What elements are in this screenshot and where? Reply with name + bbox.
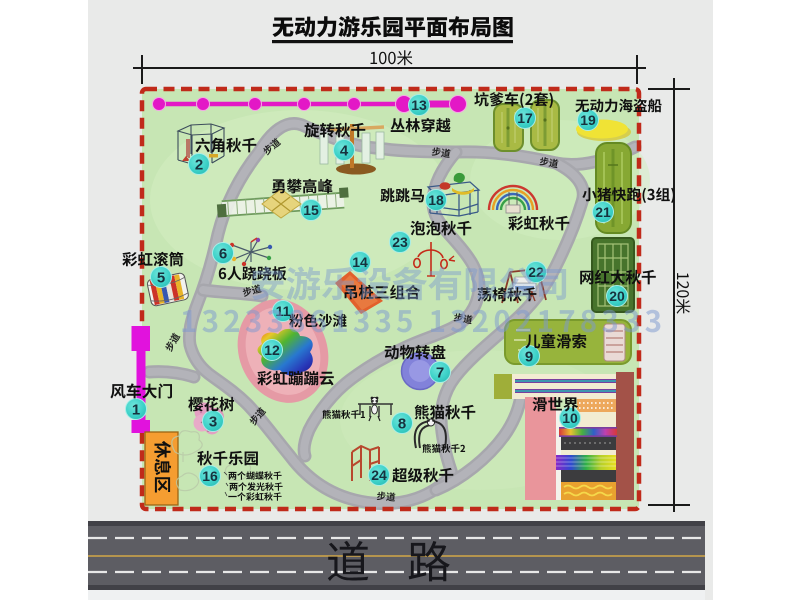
svg-text:2: 2	[195, 156, 203, 173]
svg-text:24: 24	[371, 467, 387, 483]
svg-text:12: 12	[264, 342, 280, 358]
svg-text:5: 5	[157, 269, 165, 286]
svg-text:6: 6	[219, 245, 227, 262]
svg-text:18: 18	[428, 192, 444, 208]
svg-text:15: 15	[303, 202, 319, 218]
svg-text:7: 7	[436, 364, 444, 381]
svg-text:4: 4	[340, 142, 349, 159]
svg-text:14: 14	[352, 254, 368, 270]
svg-text:19: 19	[580, 112, 596, 128]
svg-text:23: 23	[392, 234, 408, 250]
svg-text:1: 1	[132, 401, 140, 418]
svg-text:16: 16	[202, 468, 218, 484]
svg-text:10: 10	[562, 410, 578, 426]
svg-text:13: 13	[411, 97, 427, 113]
svg-text:17: 17	[517, 110, 533, 126]
svg-text:3: 3	[209, 413, 217, 430]
svg-text:9: 9	[525, 348, 533, 365]
svg-text:8: 8	[398, 415, 406, 432]
svg-text:21: 21	[595, 204, 611, 220]
svg-text:20: 20	[609, 288, 625, 304]
